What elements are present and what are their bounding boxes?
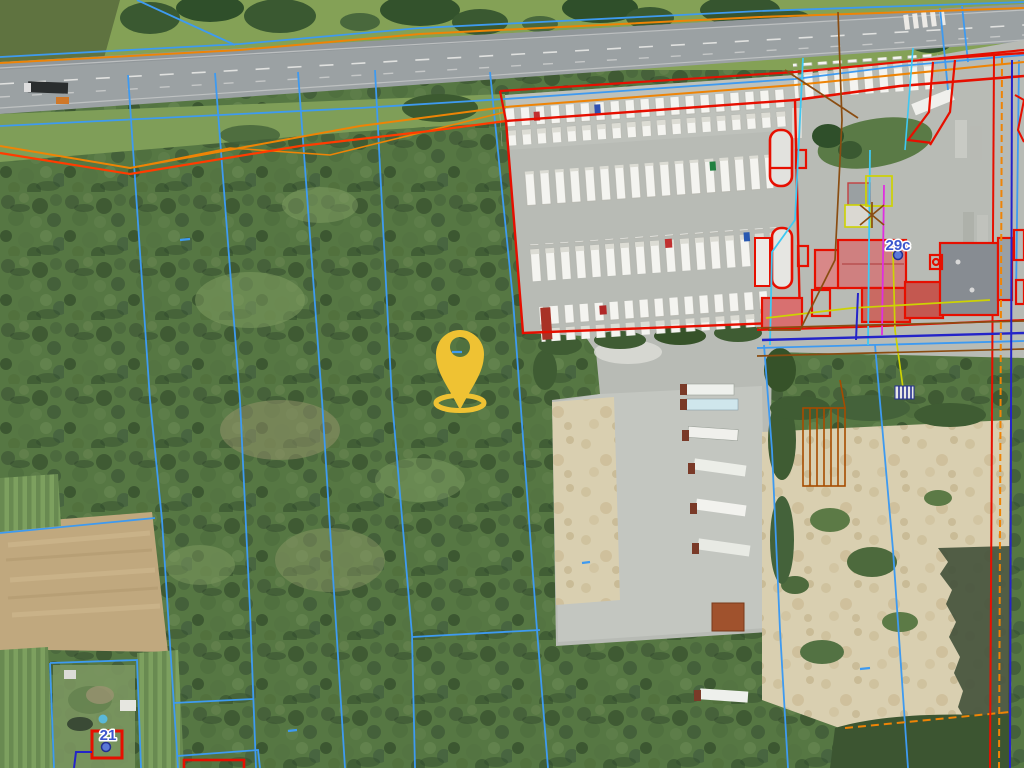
warehouse-building xyxy=(940,243,998,315)
silo-tank xyxy=(770,130,792,186)
aerial-map-canvas[interactable]: 29c 21 xyxy=(0,0,1024,768)
parcel-label-21: 21 xyxy=(100,727,117,744)
station-canopy xyxy=(845,205,871,227)
parcel-label-29c: 29c xyxy=(885,237,910,254)
aerial-map-image: 29c 21 xyxy=(0,0,1024,768)
tree-clump xyxy=(402,94,478,122)
homestead-garden xyxy=(53,665,136,768)
plowed-field xyxy=(0,512,168,655)
striped-utility-icon xyxy=(895,386,914,399)
small-rust-building xyxy=(712,603,744,631)
